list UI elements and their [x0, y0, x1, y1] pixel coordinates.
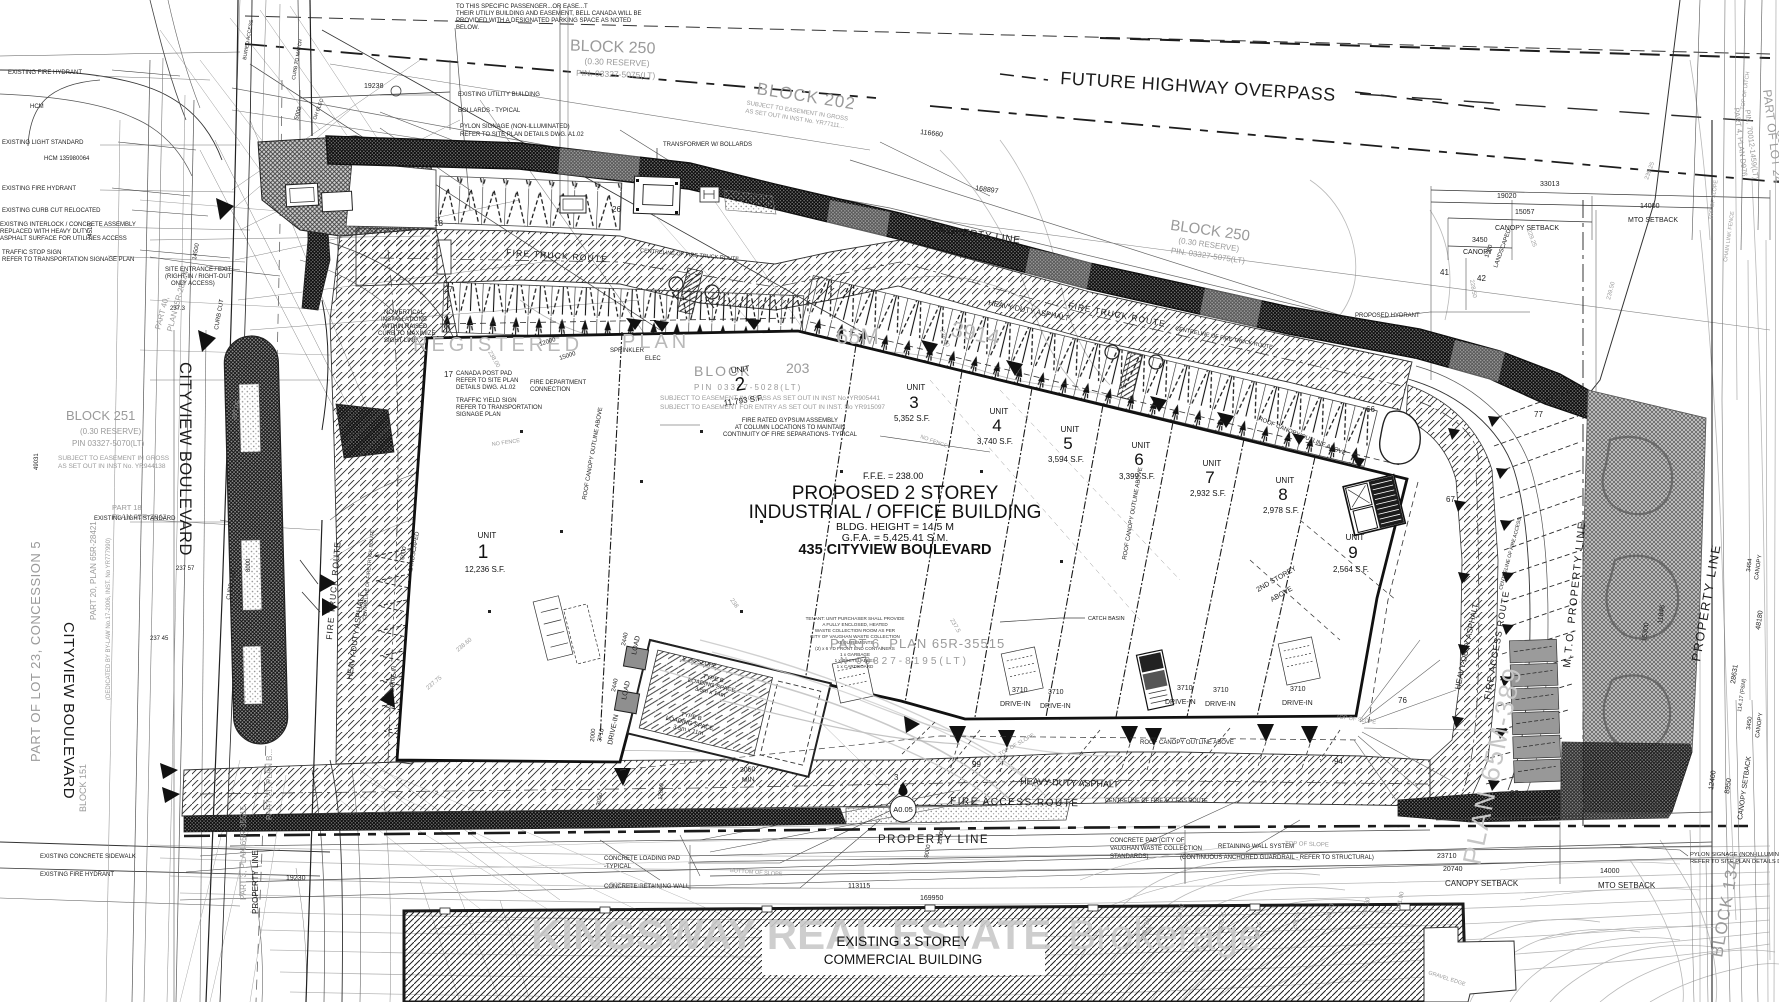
svg-text:PIN 03327-5070(LT): PIN 03327-5070(LT): [72, 439, 145, 448]
svg-text:SITE ENTRANCE / EXIT: SITE ENTRANCE / EXIT: [165, 267, 232, 273]
svg-text:REFER TO TRANSPORTATION: REFER TO TRANSPORTATION: [456, 405, 542, 411]
svg-text:SUBJECT TO EASEMENT IN GROSS A: SUBJECT TO EASEMENT IN GROSS AS SET OUT …: [660, 395, 880, 402]
svg-text:BLOCK 250: BLOCK 250: [570, 38, 656, 58]
svg-text:REFER TO SITE PLAN DETAILS DWG: REFER TO SITE PLAN DETAILS DWG. A1.02: [460, 132, 584, 138]
svg-text:PROPOSED HYDRANT: PROPOSED HYDRANT: [1355, 313, 1420, 319]
svg-text:BLOCK 151: BLOCK 151: [78, 764, 88, 812]
svg-text:PROPERTY LINE: PROPERTY LINE: [878, 834, 989, 846]
svg-text:19230: 19230: [286, 875, 306, 882]
svg-text:N 03327-8195(LT): N 03327-8195(LT): [840, 656, 969, 667]
svg-text:PYLON SIGNAGE (NON-ILLUMINA: PYLON SIGNAGE (NON-ILLUMINA: [1690, 852, 1779, 858]
svg-text:COMMERCIAL BUILDING: COMMERCIAL BUILDING: [824, 952, 983, 967]
svg-text:BELOW.: BELOW.: [456, 25, 479, 31]
svg-text:UNIT: UNIT: [990, 407, 1009, 416]
svg-text:237.3: 237.3: [170, 306, 186, 312]
svg-text:3,740 S.F.: 3,740 S.F.: [977, 437, 1013, 446]
svg-text:CONCRETE PAD (CITY OF: CONCRETE PAD (CITY OF: [1110, 838, 1185, 844]
svg-text:5: 5: [1063, 434, 1072, 453]
svg-text:FIRE DEPARTMENT: FIRE DEPARTMENT: [530, 380, 586, 386]
svg-text:DETAILS DWG. A1.02: DETAILS DWG. A1.02: [456, 385, 516, 391]
svg-text:3: 3: [894, 773, 899, 782]
svg-text:(RIGHT-IN / RIGHT-OUT: (RIGHT-IN / RIGHT-OUT: [165, 274, 232, 280]
svg-text:REPLACED WITH HEAVY DUTY: REPLACED WITH HEAVY DUTY: [0, 229, 89, 235]
svg-text:WITHIN RAISED: WITHIN RAISED: [382, 324, 428, 330]
svg-text:CONTINUITY OF FIRE SEPARATIONS: CONTINUITY OF FIRE SEPARATIONS- TYPICAL: [723, 432, 858, 438]
svg-text:RETAINING WALL SYSTEM: RETAINING WALL SYSTEM: [1218, 844, 1294, 850]
svg-text:PART 21, PLAN B...: PART 21, PLAN B...: [265, 749, 274, 820]
svg-text:DRIVE-IN: DRIVE-IN: [1165, 699, 1196, 706]
svg-text:19020: 19020: [1497, 193, 1517, 200]
svg-text:TRANSFORMER W/ BOLLARDS: TRANSFORMER W/ BOLLARDS: [663, 142, 752, 148]
svg-text:CENTRELINE OF FIRE ACCESS ROUT: CENTRELINE OF FIRE ACCESS ROUTE: [1105, 798, 1208, 804]
svg-text:4: 4: [992, 416, 1001, 435]
svg-text:UNIT: UNIT: [907, 383, 926, 392]
svg-text:BOLLARDS - TYPICAL: BOLLARDS - TYPICAL: [458, 108, 521, 114]
svg-text:STANDARDS): STANDARDS): [1110, 854, 1149, 860]
svg-text:AT COLUMN LOCATIONS TO MAINTAI: AT COLUMN LOCATIONS TO MAINTAIN: [735, 425, 845, 431]
svg-text:CATCH BASIN: CATCH BASIN: [1088, 616, 1125, 622]
svg-text:PROVIDED WITH A DESIGNATED PAR: PROVIDED WITH A DESIGNATED PARKING SPACE…: [456, 18, 632, 24]
svg-text:PLAN: PLAN: [622, 331, 690, 353]
svg-text:3710: 3710: [1213, 687, 1229, 694]
svg-text:-TYPICAL: -TYPICAL: [604, 864, 632, 870]
svg-text:PART 18: PART 18: [112, 503, 142, 512]
svg-text:ELEC: ELEC: [645, 356, 661, 362]
svg-text:67: 67: [1446, 495, 1455, 504]
svg-text:BLOCK 251: BLOCK 251: [66, 408, 135, 423]
svg-text:41: 41: [1440, 268, 1449, 277]
svg-text:PROPERTY LINE: PROPERTY LINE: [251, 850, 260, 914]
svg-text:DRIVE-IN: DRIVE-IN: [1000, 701, 1031, 708]
svg-text:SUBJECT TO EASEMENT FOR ENTRY: SUBJECT TO EASEMENT FOR ENTRY AS SET OUT…: [660, 404, 885, 411]
svg-text:ASPHALT SURFACE FOR UTILITIES: ASPHALT SURFACE FOR UTILITIES ACCESS: [0, 236, 127, 242]
svg-text:REFER TO TRANSPORTATION SIGNAG: REFER TO TRANSPORTATION SIGNAGE PLAN: [2, 257, 134, 263]
svg-text:3450: 3450: [1472, 237, 1488, 244]
svg-text:3710: 3710: [1177, 685, 1193, 692]
svg-text:(0.30 RESERVE): (0.30 RESERVE): [80, 427, 142, 436]
svg-text:PART OF LOT 23, CONCESSION 5: PART OF LOT 23, CONCESSION 5: [28, 541, 43, 762]
svg-text:66: 66: [1366, 405, 1375, 414]
svg-text:UNIT: UNIT: [478, 531, 497, 540]
svg-text:5,352 S.F.: 5,352 S.F.: [894, 414, 930, 423]
svg-text:2,978 S.F.: 2,978 S.F.: [1263, 506, 1299, 515]
svg-text:CONCRETE LOADING PAD: CONCRETE LOADING PAD: [604, 856, 681, 862]
svg-text:15057: 15057: [1515, 209, 1535, 216]
svg-text:33013: 33013: [1540, 181, 1560, 188]
svg-text:HCM 135980064: HCM 135980064: [44, 156, 90, 162]
svg-text:237 45: 237 45: [150, 636, 169, 642]
svg-text:Brokerage: Brokerage: [1068, 911, 1262, 958]
svg-text:CONNECTION: CONNECTION: [530, 387, 570, 393]
svg-text:EXISTING FIRE HYDRANT: EXISTING FIRE HYDRANT: [8, 70, 82, 76]
svg-text:(CONTINUOUS ANCHORED GUARDRAIL: (CONTINUOUS ANCHORED GUARDRAIL - REFER T…: [1180, 855, 1374, 861]
svg-text:PART 6, PLAN 65R-35515: PART 6, PLAN 65R-35515: [830, 636, 1005, 651]
svg-text:7: 7: [1205, 468, 1214, 487]
svg-text:EXISTING FIRE HYDRANT: EXISTING FIRE HYDRANT: [2, 186, 76, 192]
svg-text:14000: 14000: [1600, 868, 1620, 875]
svg-text:24510: 24510: [88, 223, 94, 240]
svg-text:23710: 23710: [1437, 853, 1457, 860]
svg-text:CITYVIEW BOULEVARD: CITYVIEW BOULEVARD: [176, 362, 194, 556]
svg-text:3: 3: [909, 393, 918, 412]
svg-text:UNIT: UNIT: [1346, 533, 1365, 542]
svg-text:2000: 2000: [590, 728, 597, 742]
svg-text:1: 1: [478, 542, 489, 563]
svg-text:CANADA POST PAD: CANADA POST PAD: [456, 371, 513, 377]
svg-text:99: 99: [972, 760, 981, 769]
svg-text:PIN 03327-5028(LT): PIN 03327-5028(LT): [694, 383, 802, 392]
svg-text:435 CITYVIEW BOULEVARD: 435 CITYVIEW BOULEVARD: [798, 542, 991, 558]
svg-text:TRAFFIC STOP SIGN: TRAFFIC STOP SIGN: [2, 250, 61, 256]
svg-text:TENANT: UNIT PURCHASER SHALL P: TENANT: UNIT PURCHASER SHALL PROVIDE: [806, 616, 905, 621]
svg-text:EXISTING 3 STOREY: EXISTING 3 STOREY: [836, 934, 969, 949]
svg-text:PROPOSED 2 STOREY: PROPOSED 2 STOREY: [792, 483, 999, 504]
svg-text:KINGSWAY REAL ESTATE: KINGSWAY REAL ESTATE: [531, 911, 1051, 958]
svg-text:2,932 S.F.: 2,932 S.F.: [1190, 489, 1226, 498]
svg-text:18: 18: [434, 219, 443, 228]
svg-text:3,594 S.F.: 3,594 S.F.: [1048, 455, 1084, 464]
svg-text:VAUGHAN WASTE COLLECTION: VAUGHAN WASTE COLLECTION: [1110, 846, 1202, 852]
svg-text:EXISTING FIRE HYDRANT: EXISTING FIRE HYDRANT: [40, 872, 114, 878]
svg-text:26: 26: [612, 205, 621, 214]
svg-text:REGISTERED: REGISTERED: [413, 334, 583, 356]
svg-text:PART 3, PLAN 65R-35515: PART 3, PLAN 65R-35515: [239, 805, 248, 900]
svg-text:INDUSTRIAL / OFFICE BUILDING: INDUSTRIAL / OFFICE BUILDING: [749, 502, 1042, 523]
svg-text:NO VERTICAL: NO VERTICAL: [384, 310, 425, 316]
svg-text:19238: 19238: [364, 83, 384, 90]
svg-text:AS SET OUT IN INST No. YR94413: AS SET OUT IN INST No. YR944138: [58, 463, 166, 470]
svg-text:EXISTING LIGHT STANDARD: EXISTING LIGHT STANDARD: [2, 140, 84, 146]
svg-text:203: 203: [786, 360, 810, 376]
svg-text:20740: 20740: [1443, 866, 1463, 873]
svg-text:UNIT: UNIT: [1276, 476, 1295, 485]
svg-text:MIN: MIN: [742, 776, 755, 784]
svg-text:94: 94: [1334, 757, 1343, 766]
svg-text:27: 27: [444, 285, 453, 294]
svg-text:3710: 3710: [1012, 687, 1028, 694]
svg-text:F.F.E. = 238.00: F.F.E. = 238.00: [863, 471, 923, 481]
svg-text:MTO SETBACK: MTO SETBACK: [1628, 217, 1678, 224]
svg-text:EXISTING CURB CUT RELOCATED: EXISTING CURB CUT RELOCATED: [2, 208, 101, 214]
svg-text:EXISTING CONCRETE SIDEWALK: EXISTING CONCRETE SIDEWALK: [40, 854, 136, 860]
svg-text:DRIVE-IN: DRIVE-IN: [1205, 701, 1236, 708]
svg-text:9: 9: [1348, 543, 1357, 562]
svg-text:8: 8: [1278, 485, 1287, 504]
svg-text:EXISTING INTERLOCK / CONCRETE: EXISTING INTERLOCK / CONCRETE ASSEMBLY: [0, 222, 136, 228]
svg-text:65M: 65M: [836, 324, 879, 349]
svg-text:12,236 S.F.: 12,236 S.F.: [465, 565, 505, 574]
svg-text:FIRE ACCESS ROUTE: FIRE ACCESS ROUTE: [950, 796, 1080, 809]
svg-text:93: 93: [1510, 789, 1519, 798]
svg-text:77: 77: [1534, 410, 1543, 419]
svg-text:SIGNAGE PLAN: SIGNAGE PLAN: [456, 412, 501, 418]
svg-text:EXISTING UTILITY BUILDING: EXISTING UTILITY BUILDING: [458, 92, 540, 98]
svg-text:MTO SETBACK: MTO SETBACK: [1598, 881, 1656, 890]
svg-text:(DEDICATED BY BY-LAW No.17-200: (DEDICATED BY BY-LAW No.17-2006, INST. N…: [106, 538, 112, 700]
svg-text:76: 76: [1398, 696, 1407, 705]
svg-text:SUBJECT TO EASEMENT IN GROSS: SUBJECT TO EASEMENT IN GROSS: [58, 455, 170, 462]
svg-text:ONLY ACCESS): ONLY ACCESS): [171, 281, 215, 287]
svg-text:17: 17: [444, 370, 453, 379]
svg-text:113115: 113115: [848, 883, 870, 890]
svg-text:DRIVE-IN: DRIVE-IN: [1040, 703, 1071, 710]
svg-text:THEIR UTILIY BUILDING AND EASE: THEIR UTILIY BUILDING AND EASEMENT, BELL…: [456, 11, 642, 17]
svg-text:DRIVE-IN: DRIVE-IN: [1282, 700, 1313, 707]
svg-text:3050: 3050: [740, 766, 756, 774]
svg-text:42: 42: [1477, 274, 1486, 283]
svg-text:8000: 8000: [246, 558, 252, 572]
svg-text:14000: 14000: [1640, 203, 1660, 210]
svg-text:UNIT: UNIT: [1132, 441, 1151, 450]
svg-text:UNIT: UNIT: [1203, 459, 1222, 468]
svg-text:A FULLY ENCLOSED, HEATED: A FULLY ENCLOSED, HEATED: [822, 622, 888, 627]
svg-text:HCM: HCM: [30, 104, 44, 110]
svg-text:237 57: 237 57: [176, 566, 195, 572]
svg-text:3710: 3710: [1290, 686, 1306, 693]
svg-text:49031: 49031: [34, 453, 40, 470]
svg-text:A0.05: A0.05: [893, 805, 913, 814]
svg-text:WASTE COLLECTION ROOM AS PER: WASTE COLLECTION ROOM AS PER: [815, 628, 896, 633]
svg-text:INSTALLATIONS: INSTALLATIONS: [381, 317, 427, 323]
svg-text:CANOPY SETBACK: CANOPY SETBACK: [1445, 879, 1519, 888]
svg-text:CITYVIEW BOULEVARD: CITYVIEW BOULEVARD: [60, 622, 77, 799]
svg-text:2,564 S.F.: 2,564 S.F.: [1333, 565, 1369, 574]
svg-text:TO THIS SPECIFIC PASSENGER...O: TO THIS SPECIFIC PASSENGER...OR EASE...T: [456, 4, 588, 10]
svg-text:6: 6: [1134, 450, 1143, 469]
svg-text:PYLON SIGNAGE (NON-ILLUMINATED: PYLON SIGNAGE (NON-ILLUMINATED): [460, 124, 570, 130]
svg-text:169950: 169950: [920, 895, 943, 902]
svg-text:PART 20, PLAN 65R-28421: PART 20, PLAN 65R-28421: [89, 521, 98, 620]
svg-text:3710: 3710: [1048, 689, 1064, 696]
svg-text:UNIT: UNIT: [1061, 425, 1080, 434]
svg-text:FIRE RATED GYPSUM ASSEMBLY: FIRE RATED GYPSUM ASSEMBLY: [742, 418, 838, 424]
svg-text:EXISTING LIGHT STANDARD: EXISTING LIGHT STANDARD: [94, 516, 176, 522]
svg-text:ROOF CANOPY OUTLINE ABOVE: ROOF CANOPY OUTLINE ABOVE: [1140, 740, 1234, 746]
svg-text:REFER TO SITE PLAN: REFER TO SITE PLAN: [456, 378, 518, 384]
svg-text:TRAFFIC YIELD SIGN: TRAFFIC YIELD SIGN: [456, 398, 517, 404]
